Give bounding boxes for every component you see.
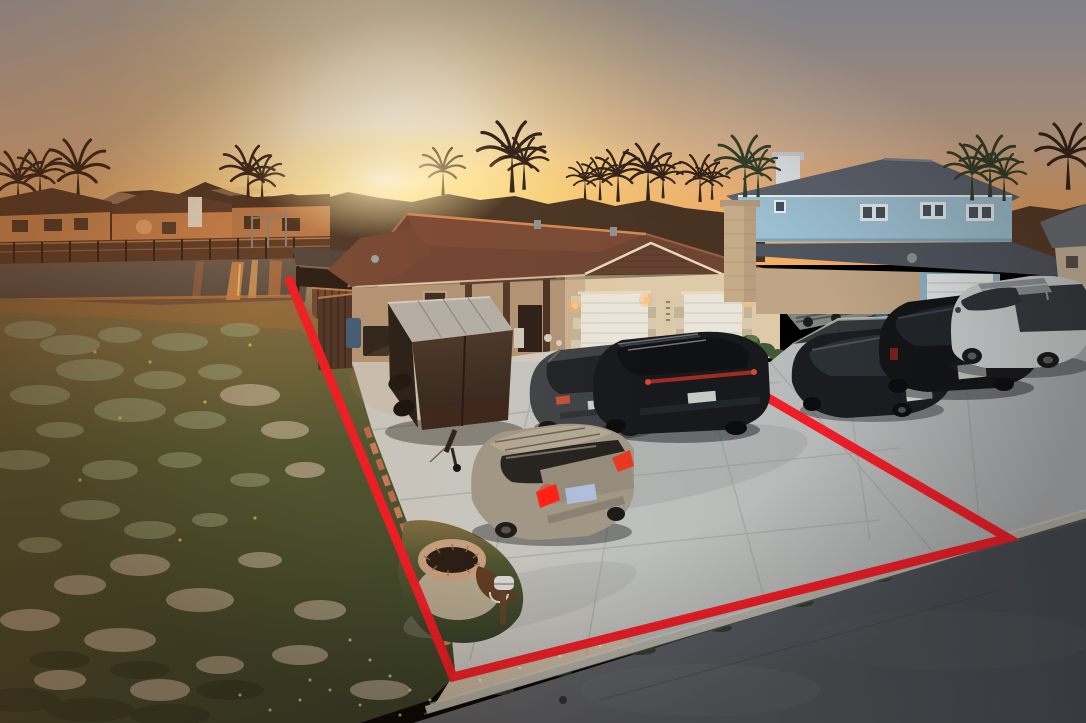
atmosphere-overlays — [0, 0, 1086, 723]
aerial-photo-svg — [0, 0, 1086, 723]
property-aerial-photo — [0, 0, 1086, 723]
